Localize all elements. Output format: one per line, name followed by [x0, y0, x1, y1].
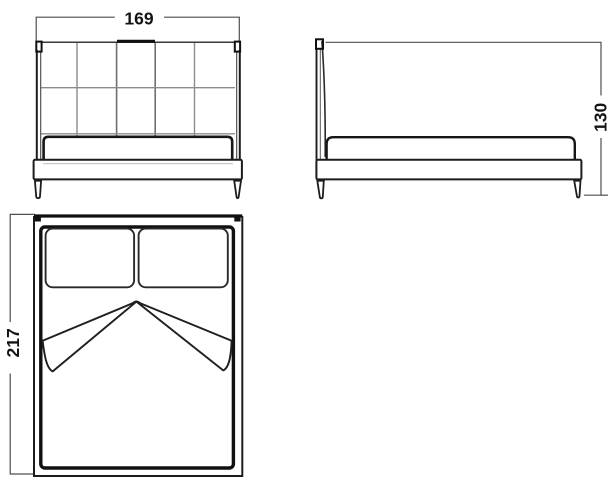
- svg-text:169: 169: [124, 9, 153, 29]
- svg-text:130: 130: [591, 103, 611, 132]
- svg-text:217: 217: [3, 328, 23, 357]
